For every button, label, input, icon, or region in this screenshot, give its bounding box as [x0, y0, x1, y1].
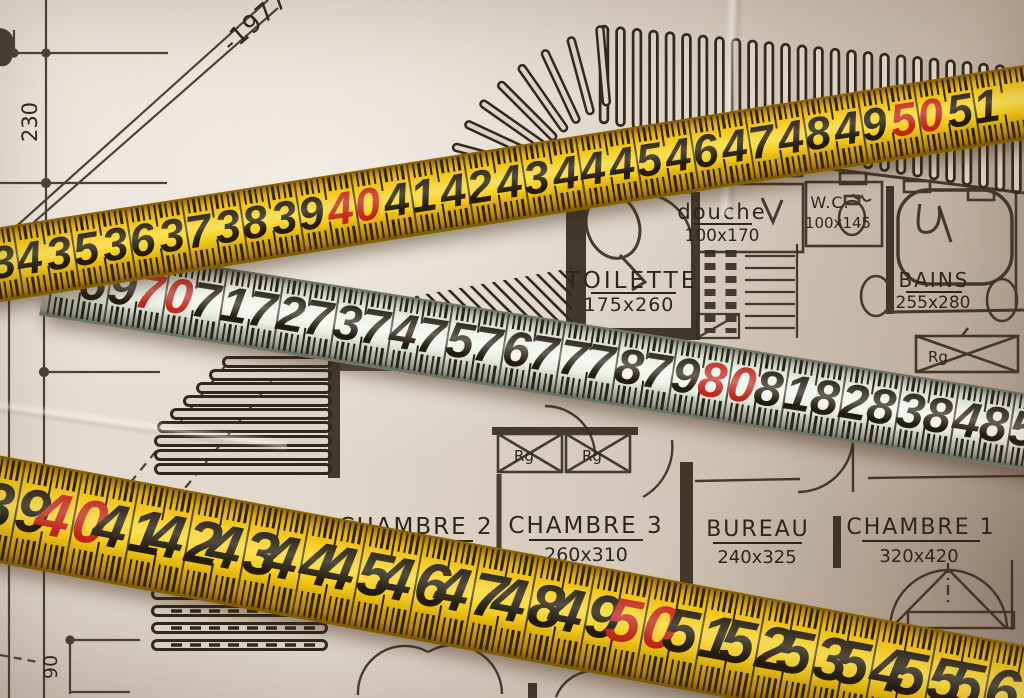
tape-number: 39 [268, 188, 329, 242]
blueprint-photo: -1977- 230 90 TOILETTE 175x260 douche 10… [0, 0, 1024, 698]
tape-number: 35 [42, 223, 103, 277]
tape-number: 47 [718, 116, 779, 170]
radiator-label-1: Rg [514, 447, 534, 465]
tape-number: 51 [943, 81, 1004, 135]
tape-number: 85 [976, 397, 1024, 456]
mm-tick [1016, 120, 1021, 138]
mm-tick [63, 299, 68, 317]
room-label-wc: W.C. [810, 193, 849, 212]
tape-number: 38 [211, 196, 272, 250]
radiator-label-3: Rg [928, 348, 948, 366]
mm-tick [69, 300, 74, 318]
tape-number: 42 [437, 161, 498, 215]
mm-tick [1020, 67, 1024, 81]
room-size-bureau: 240x325 [717, 547, 796, 568]
room-size-toilette: 175x260 [584, 294, 675, 316]
mm-tick [1014, 68, 1019, 82]
year-label: -1977- [216, 0, 301, 58]
plan-line [571, 41, 590, 111]
tape-number: 45 [605, 134, 666, 188]
room-label-douche: douche [677, 200, 766, 224]
plan-mark [0, 28, 14, 66]
mm-tick [1011, 121, 1016, 139]
tape-number: 46 [662, 125, 723, 179]
tape-number: 49 [831, 98, 892, 152]
staircase [697, 244, 797, 338]
tape-number: 56 [943, 651, 1024, 698]
room-label-chambre1: CHAMBRE 1 [846, 515, 995, 540]
dim-230-label: 230 [18, 102, 42, 142]
tape-number: 44 [549, 143, 610, 197]
mm-tick [52, 297, 57, 315]
room-size-douche: 100x170 [685, 226, 760, 246]
room-label-toilette: TOILETTE [565, 268, 699, 294]
room-size-chambre1: 320x420 [879, 546, 958, 567]
mm-tick [1003, 70, 1008, 84]
room-label-bureau: BUREAU [706, 517, 810, 542]
tape-number: 36 [99, 214, 160, 268]
tape-number: 37 [155, 205, 216, 259]
radiator-label-2: Rg [582, 447, 602, 465]
mm-tick [58, 298, 63, 316]
louver-shutters [160, 362, 326, 469]
room-label-chambre3: CHAMBRE 3 [508, 513, 663, 539]
mm-tick [1008, 69, 1013, 83]
dim-90-label: 90 [40, 655, 62, 679]
tape-number: 41 [380, 170, 441, 224]
room-size-bains: 255x280 [896, 293, 971, 313]
room-label-bains: BAINS [899, 268, 970, 292]
tape-number: 40 [324, 179, 385, 233]
tape-number: 50 [887, 89, 948, 143]
tape-number: 43 [493, 152, 554, 206]
tape-number: 48 [774, 107, 835, 161]
room-size-wc: 100x145 [805, 214, 871, 232]
tape-number: 34 [0, 232, 48, 286]
